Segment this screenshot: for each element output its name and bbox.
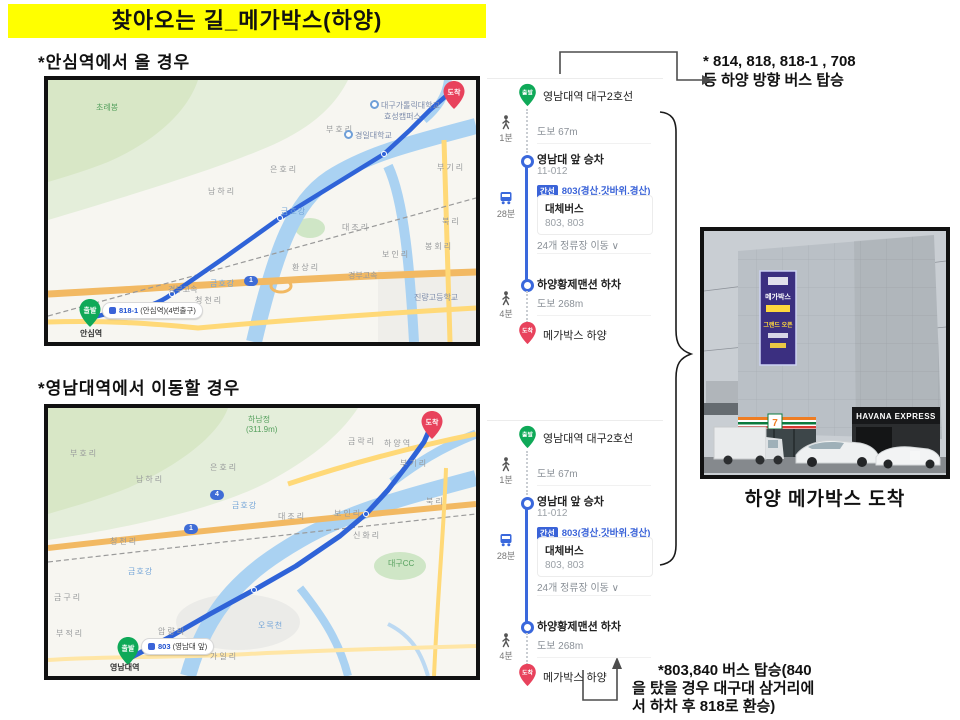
divider: [537, 595, 651, 596]
banner-bar: [770, 343, 786, 348]
banner-text: 그랜드 오픈: [763, 321, 793, 329]
route-stop-dot: [252, 588, 257, 593]
walk-duration: 4분: [493, 649, 519, 662]
brace: [660, 112, 691, 565]
board-stop-id: 11-012: [537, 166, 567, 177]
board-stop-id: 11-012: [537, 508, 567, 519]
poi-icon: [370, 100, 379, 109]
walk-icon: [500, 115, 512, 130]
wheel: [884, 460, 893, 469]
board-stop-marker: [521, 497, 534, 510]
bus-icon: [499, 533, 513, 547]
map-label: 남하리: [208, 186, 236, 197]
map-yeungnam-route: 하남정 (311.9m) 남하리 은호리 부호리 청천리 부기리 북리 보인리 …: [44, 404, 480, 680]
wheel: [724, 456, 733, 465]
map-label-school: 진량고등학교: [414, 292, 458, 303]
end-station-label: 메가박스 하양: [543, 669, 607, 685]
box-truck: [714, 427, 766, 459]
photo-canvas: 메가박스 그랜드 오픈 HAVANA EXPRESS 7: [704, 231, 946, 473]
alt-bus-label: 대체버스: [545, 543, 645, 558]
page-title: 찾아오는 길_메가박스(하양): [8, 4, 486, 38]
bus-stop-icon: [109, 307, 116, 314]
map-label: 남하리: [136, 474, 164, 485]
wheel: [926, 460, 935, 469]
end-pin-icon: 도착: [420, 410, 444, 440]
board-stop-label: 영남대 앞 승차: [537, 151, 604, 167]
route-stop-dot: [382, 152, 387, 157]
walk-duration: 1분: [493, 473, 519, 486]
top-callout-line: [560, 52, 702, 80]
bus-rail: [525, 503, 528, 625]
bus-icon: [499, 191, 513, 205]
top-note-line2: 등 하양 방향 버스 탑승: [703, 71, 856, 90]
svg-text:출발: 출발: [122, 644, 135, 653]
road-shield: 1: [244, 276, 258, 286]
board-stop-marker: [521, 155, 534, 168]
map-label: 압량리: [158, 626, 186, 637]
map-label-university: 대구가톨릭대학교: [370, 100, 440, 111]
map-label: 청천리: [110, 536, 138, 547]
map-label: 대조리: [278, 511, 306, 522]
plastic-chair: [910, 451, 920, 460]
road-shield: 4: [210, 490, 224, 500]
walk-rail: [526, 633, 528, 665]
banner-logo: [768, 277, 788, 285]
board-stop-label: 영남대 앞 승차: [537, 493, 604, 509]
map-label-golf: 대구CC: [388, 558, 414, 569]
divider: [537, 485, 651, 486]
map-label-station: 영남대역: [110, 662, 139, 673]
route-stop-dot: [364, 512, 369, 517]
map-label: 부기리: [400, 458, 428, 469]
svg-text:도착: 도착: [426, 418, 439, 427]
start-station-label: 영남대역 대구2호선: [543, 88, 633, 104]
route-panel-2: 출발 영남대역 대구2호선 1분 도보 67m 영남대 앞 승차 11-012 …: [487, 420, 663, 689]
start-pin-icon: 출발: [518, 83, 537, 107]
map-label: 가일리: [210, 651, 238, 662]
alt-bus-lines: 803, 803: [545, 560, 645, 571]
alight-stop-label: 하양황제맨션 하차: [537, 276, 621, 292]
svg-text:도착: 도착: [448, 88, 461, 97]
alt-bus-card: 대체버스 803, 803: [537, 195, 653, 235]
route-panel-1: 출발 영남대역 대구2호선 1분 도보 67m 영남대 앞 승차 11-012 …: [487, 78, 663, 347]
section-label-ansim: *안심역에서 올 경우: [38, 48, 190, 73]
photo-caption: 하양 메가박스 도착: [700, 484, 950, 511]
map-label-peak: (311.9m): [246, 425, 277, 434]
divider: [537, 315, 651, 316]
start-pin-icon: 출발: [518, 425, 537, 449]
walk-distance: 도보 67m: [537, 465, 578, 480]
truck-window: [768, 440, 778, 448]
alt-bus-card: 대체버스 803, 803: [537, 537, 653, 577]
bus-duration: 28분: [493, 207, 519, 220]
map-label-river: 금호강: [281, 206, 306, 217]
town-area: [378, 270, 476, 342]
top-note: * 814, 818, 818-1 , 708 등 하양 방향 버스 탑승: [703, 52, 856, 90]
map-label: 부적리: [56, 628, 84, 639]
map-label: 하양역: [384, 438, 412, 449]
map-label: 금락리: [348, 436, 376, 447]
map-label-river: 금호강: [128, 566, 153, 577]
walk-duration: 1분: [493, 131, 519, 144]
wheel: [756, 456, 765, 465]
map-label: 부호리: [70, 448, 98, 459]
map-label: 대조리: [342, 222, 370, 233]
map-label-river: 금호강: [210, 278, 235, 289]
walk-duration: 4분: [493, 307, 519, 320]
map-label: 신화리: [353, 530, 381, 541]
slide: 찾아오는 길_메가박스(하양) *안심역에서 올 경우 *영남대역에서 이동할 …: [0, 0, 960, 720]
banner-bar: [766, 305, 790, 312]
map-label-peak: 하남정: [248, 414, 270, 425]
overpass: [704, 403, 742, 415]
end-station-label: 메가박스 하양: [543, 327, 607, 343]
section-label-yeungnam: *영남대역에서 이동할 경우: [38, 374, 240, 399]
divider: [537, 657, 651, 658]
map-label-road: 경부고속: [168, 284, 197, 295]
bus-rail: [525, 161, 528, 283]
arrival-photo: 메가박스 그랜드 오픈 HAVANA EXPRESS 7: [700, 227, 950, 479]
megabox-banner: [760, 271, 796, 365]
havana-sign-text: HAVANA EXPRESS: [856, 412, 936, 421]
banner-text: 메가박스: [765, 292, 791, 301]
route-start-pill: 818-1 (안심역)(4번출구): [102, 302, 203, 319]
top-note-line1: * 814, 818, 818-1 , 708: [703, 52, 856, 71]
map-label: 북리: [442, 216, 461, 227]
map-label: 금구리: [54, 592, 82, 603]
divider: [537, 253, 651, 254]
stops-expander: 24개 정류장 이동 ∨: [537, 579, 619, 594]
walk-icon: [500, 457, 512, 472]
map-ansim-route: 초례봉 남하리 은호리 부호리 대구가톨릭대학교 효성캠퍼스 경일대학교 대조리…: [44, 76, 480, 346]
walk-rail: [526, 451, 528, 495]
wheel: [774, 456, 783, 465]
seven-logo-text: 7: [772, 418, 778, 429]
wheel: [857, 457, 867, 467]
walk-icon: [500, 633, 512, 648]
alt-bus-label: 대체버스: [545, 201, 645, 216]
map-label: 은호리: [270, 164, 298, 175]
bottom-note-line3: 서 하차 후 818로 환승): [632, 698, 814, 716]
map-label-river: 금호강: [232, 500, 257, 511]
walk-icon: [500, 291, 512, 306]
map-label-road: 경부고속: [348, 270, 377, 281]
map-label: 부기리: [437, 162, 465, 173]
bus-stop-icon: [148, 643, 155, 650]
map-label: 효성캠퍼스: [384, 111, 421, 122]
walk-distance: 도보 268m: [537, 637, 583, 652]
divider: [537, 143, 651, 144]
start-station-label: 영남대역 대구2호선: [543, 430, 633, 446]
bus-duration: 28분: [493, 549, 519, 562]
map-label: 봉회리: [425, 241, 453, 252]
road-shield: 1: [184, 524, 198, 534]
stops-expander: 24개 정류장 이동 ∨: [537, 237, 619, 252]
end-pin-icon: 도착: [518, 663, 537, 687]
banner-bar: [768, 333, 788, 338]
start-pin-icon: 출발: [78, 298, 102, 328]
map-label: 환상리: [292, 262, 320, 273]
end-pin-icon: 도착: [518, 321, 537, 345]
end-pin-icon: 도착: [442, 80, 466, 110]
map-label: 은호리: [210, 462, 238, 473]
map-label: 보인리: [334, 508, 362, 519]
map-label: 북리: [426, 496, 445, 507]
walk-rail: [526, 291, 528, 323]
poi-icon: [344, 130, 353, 139]
map-label-stream: 오목천: [258, 620, 283, 631]
map-label-university: 경일대학교: [344, 130, 392, 141]
walk-distance: 도보 67m: [537, 123, 578, 138]
map-label-station: 안심역: [80, 328, 102, 339]
map-label: 초례봉: [96, 102, 118, 113]
svg-text:출발: 출발: [84, 306, 97, 315]
walk-distance: 도보 268m: [537, 295, 583, 310]
alight-stop-label: 하양황제맨션 하차: [537, 618, 621, 634]
map-label: 보인리: [382, 249, 410, 260]
walk-rail: [526, 109, 528, 153]
route-start-pill: 803 (영남대 앞): [141, 638, 214, 655]
alt-bus-lines: 803, 803: [545, 218, 645, 229]
wheel: [807, 457, 817, 467]
